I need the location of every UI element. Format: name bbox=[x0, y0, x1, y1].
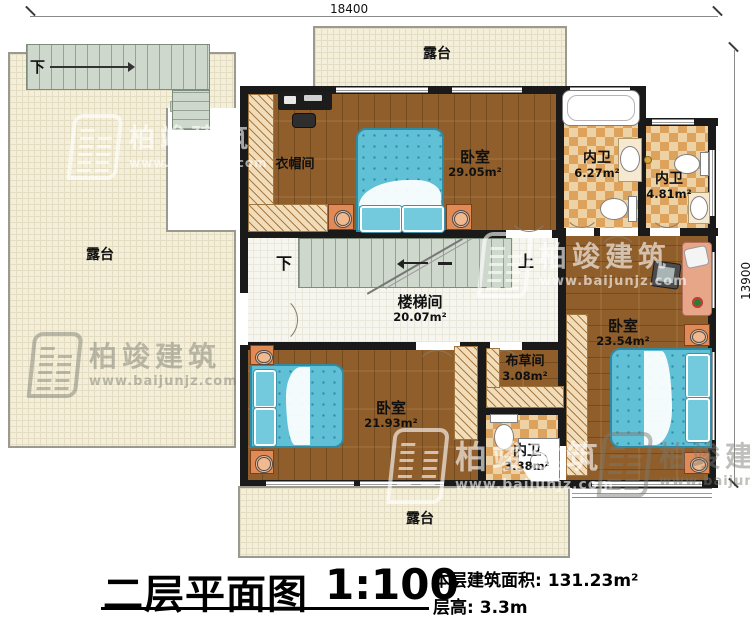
nightstand bbox=[684, 324, 710, 346]
cloakroom-label: 衣帽间 bbox=[260, 158, 330, 172]
stairs-down-label: 下 bbox=[276, 250, 292, 274]
bedroom-top-area: 29.05m² bbox=[438, 166, 512, 179]
linen-name: 布草间 bbox=[494, 355, 556, 369]
stair-direction-arrow bbox=[128, 62, 140, 72]
monitor-screen bbox=[656, 266, 675, 283]
window bbox=[592, 481, 702, 487]
terrace-top-label: 露台 bbox=[407, 47, 467, 62]
title-underline bbox=[101, 607, 429, 610]
plan-title: 二层平面图 bbox=[103, 562, 308, 620]
door-arc bbox=[508, 190, 550, 232]
window bbox=[652, 119, 694, 125]
pillow bbox=[360, 206, 402, 232]
nightstand bbox=[250, 345, 274, 365]
nightstand bbox=[328, 204, 354, 230]
stair-arrow-head bbox=[392, 259, 404, 269]
plant bbox=[692, 297, 703, 308]
shelf-hatch bbox=[486, 386, 564, 408]
floor-height-value: 3.3m bbox=[480, 598, 528, 618]
toilet-tank bbox=[490, 414, 518, 423]
door-arc bbox=[564, 192, 600, 228]
linen-area: 3.08m² bbox=[494, 370, 556, 383]
railing bbox=[572, 488, 712, 498]
bath-c-area: 3.38m² bbox=[498, 460, 556, 473]
pillow bbox=[686, 354, 710, 398]
door-gap bbox=[566, 228, 594, 236]
bath-b-area: 4.81m² bbox=[640, 188, 698, 201]
pillow bbox=[686, 398, 710, 442]
stair-arrow-line bbox=[400, 262, 428, 264]
door-gap bbox=[240, 293, 248, 345]
stairs-up-label: 上 bbox=[518, 248, 534, 272]
nightstand bbox=[684, 452, 710, 474]
terrace-left-label: 露台 bbox=[60, 248, 140, 263]
stairwell-area: 20.07m² bbox=[382, 311, 458, 324]
door-arc bbox=[598, 236, 638, 276]
wall bbox=[240, 86, 248, 488]
floor-area-value: 131.23m² bbox=[548, 571, 639, 591]
bedroom-right-name: 卧室 bbox=[588, 318, 658, 335]
desk-item bbox=[304, 95, 322, 101]
floor-height-line: 层高: 3.3m bbox=[433, 593, 528, 618]
bathtub-inner bbox=[567, 95, 635, 121]
wardrobe-hatch bbox=[248, 94, 274, 206]
bedroom-left-area: 21.93m² bbox=[352, 417, 430, 430]
desk-item bbox=[284, 96, 296, 104]
door-gap bbox=[650, 228, 680, 236]
door-knob bbox=[644, 156, 652, 164]
pillow bbox=[254, 370, 276, 408]
nightstand bbox=[446, 204, 472, 230]
toilet bbox=[600, 198, 628, 220]
stool bbox=[292, 113, 316, 128]
door-gap bbox=[600, 228, 638, 236]
bedroom-left-name: 卧室 bbox=[356, 400, 426, 417]
pillow bbox=[402, 206, 444, 232]
stairwell-name: 楼梯间 bbox=[384, 294, 456, 311]
floor-plan: 18400 13900 下 露台 露台 bbox=[0, 0, 750, 630]
window bbox=[336, 87, 428, 93]
bedroom-top-name: 卧室 bbox=[440, 149, 510, 166]
right-dimension-line bbox=[734, 50, 735, 486]
pillow bbox=[254, 408, 276, 446]
floor-height-label: 层高: bbox=[433, 598, 474, 618]
door-arc bbox=[416, 350, 458, 392]
toilet-tank bbox=[700, 152, 709, 176]
top-dimension-line bbox=[30, 16, 718, 17]
top-dimension-value: 18400 bbox=[330, 2, 368, 16]
terrace-bottom-label: 露台 bbox=[390, 512, 450, 527]
right-dimension-value: 13900 bbox=[739, 262, 750, 300]
bath-c-name: 内卫 bbox=[498, 444, 556, 459]
window bbox=[452, 87, 522, 93]
outdoor-stairs-down-label: 下 bbox=[30, 56, 45, 77]
stair-direction-line bbox=[50, 66, 130, 68]
bed-blanket bbox=[644, 351, 672, 445]
outdoor-stairs-lower-flight bbox=[172, 90, 210, 130]
dimension-tick bbox=[25, 6, 36, 17]
dimension-tick bbox=[712, 6, 723, 17]
bedroom-right-area: 23.54m² bbox=[584, 335, 662, 348]
wardrobe-hatch bbox=[248, 204, 328, 232]
stair-arrow-line bbox=[438, 262, 452, 265]
door-arc bbox=[250, 296, 298, 344]
wall bbox=[478, 342, 486, 488]
wardrobe-hatch bbox=[454, 346, 478, 440]
floor-area-line: 本层建筑面积: 131.23m² bbox=[433, 566, 639, 591]
bath-a-name: 内卫 bbox=[568, 151, 626, 166]
bath-a-area: 6.27m² bbox=[568, 167, 626, 180]
bath-b-name: 内卫 bbox=[640, 172, 698, 187]
bed-blanket bbox=[286, 367, 310, 445]
toilet-tank bbox=[628, 196, 637, 222]
nightstand bbox=[250, 450, 274, 474]
floor-area-label: 本层建筑面积: bbox=[433, 571, 542, 591]
